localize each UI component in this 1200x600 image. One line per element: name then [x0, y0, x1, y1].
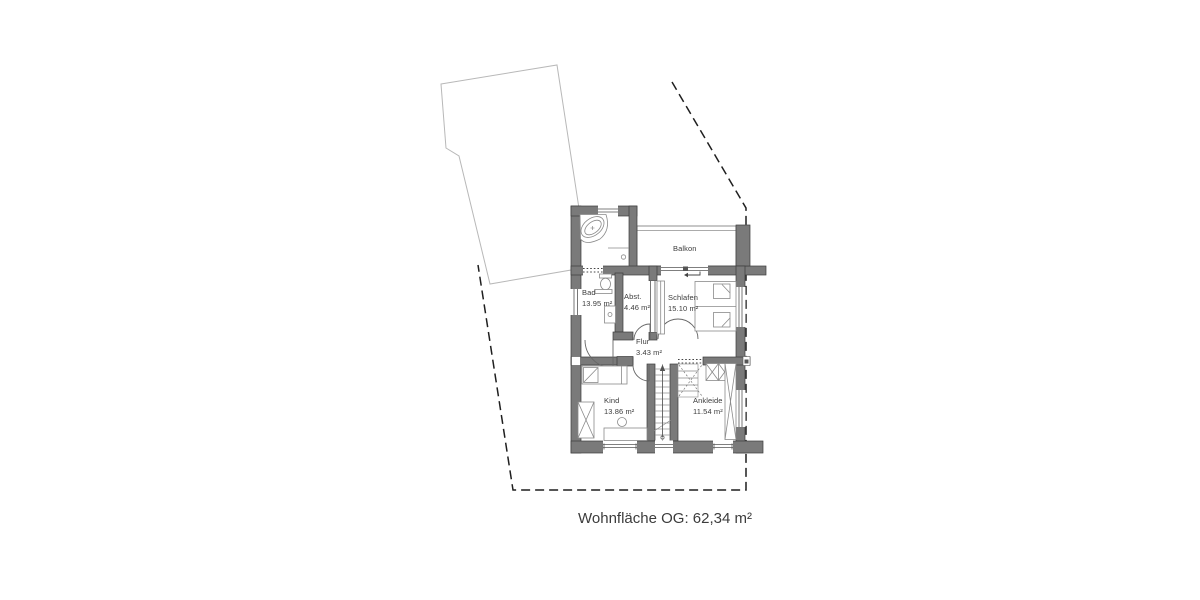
wall-stair-ankleide [670, 364, 678, 441]
room-label-kind: Kind 13.86 m² [604, 395, 634, 417]
window-left-bad [571, 289, 582, 315]
wall-abst-schlafen-top-stub [649, 266, 657, 281]
room-area: 15.10 m² [668, 303, 698, 314]
wardrobe-schlafen [657, 281, 665, 334]
room-area: 3.43 m² [636, 347, 662, 358]
dresser-kind [604, 428, 647, 441]
wardrobe-kind [578, 402, 594, 438]
balcony-label-text: Balkon [673, 244, 697, 253]
room-name: Abst. [624, 291, 650, 302]
wall-joint-ankleide [743, 357, 750, 366]
room-name: Schlafen [668, 292, 698, 303]
room-label-schlafen: Schlafen 15.10 m² [668, 292, 698, 314]
living-area-caption: Wohnfläche OG: 62,34 m² [578, 510, 752, 527]
room-area: 13.86 m² [604, 406, 634, 417]
room-area: 13.95 m² [582, 298, 612, 309]
wardrobe-ankleide-right [725, 364, 736, 440]
neighbor-building-outline [441, 65, 582, 284]
room-name: Bad [582, 287, 612, 298]
room-label-flur: Flur 3.43 m² [636, 336, 662, 358]
wall-balcony-pillar [736, 225, 750, 266]
room-name: Ankleide [693, 395, 723, 406]
wall-kind-stair [647, 364, 655, 441]
window-right-ankleide [736, 390, 746, 427]
wall-flur-north [613, 332, 633, 340]
room-area: 4.46 m² [624, 302, 650, 313]
room-area: 11.54 m² [693, 406, 723, 417]
double-bed-schlafen [695, 282, 736, 332]
room-name: Flur [636, 336, 662, 347]
wall-bath-right [629, 206, 637, 274]
window-bottom-ankleide [713, 441, 733, 454]
wall-bad-abst-divider [615, 273, 623, 332]
room-name: Kind [604, 395, 634, 406]
room-label-abst: Abst. 4.46 m² [624, 291, 650, 313]
bed-kind [582, 366, 627, 384]
window-bottom-stair [655, 441, 673, 454]
balcony-label: Balkon [673, 243, 697, 254]
balcony-door [661, 266, 708, 278]
window-bottom-kind [603, 441, 637, 454]
wall-flur-south-pillar [617, 357, 633, 367]
room-label-bad: Bad 13.95 m² [582, 287, 612, 309]
window-right-schlafen [736, 287, 746, 327]
room-label-ankleide: Ankleide 11.54 m² [693, 395, 723, 417]
wall-joint-kind [572, 357, 581, 366]
floor-plan-canvas: Balkon Bad 13.95 m² Abst. 4.46 m² Schlaf… [0, 0, 1200, 600]
